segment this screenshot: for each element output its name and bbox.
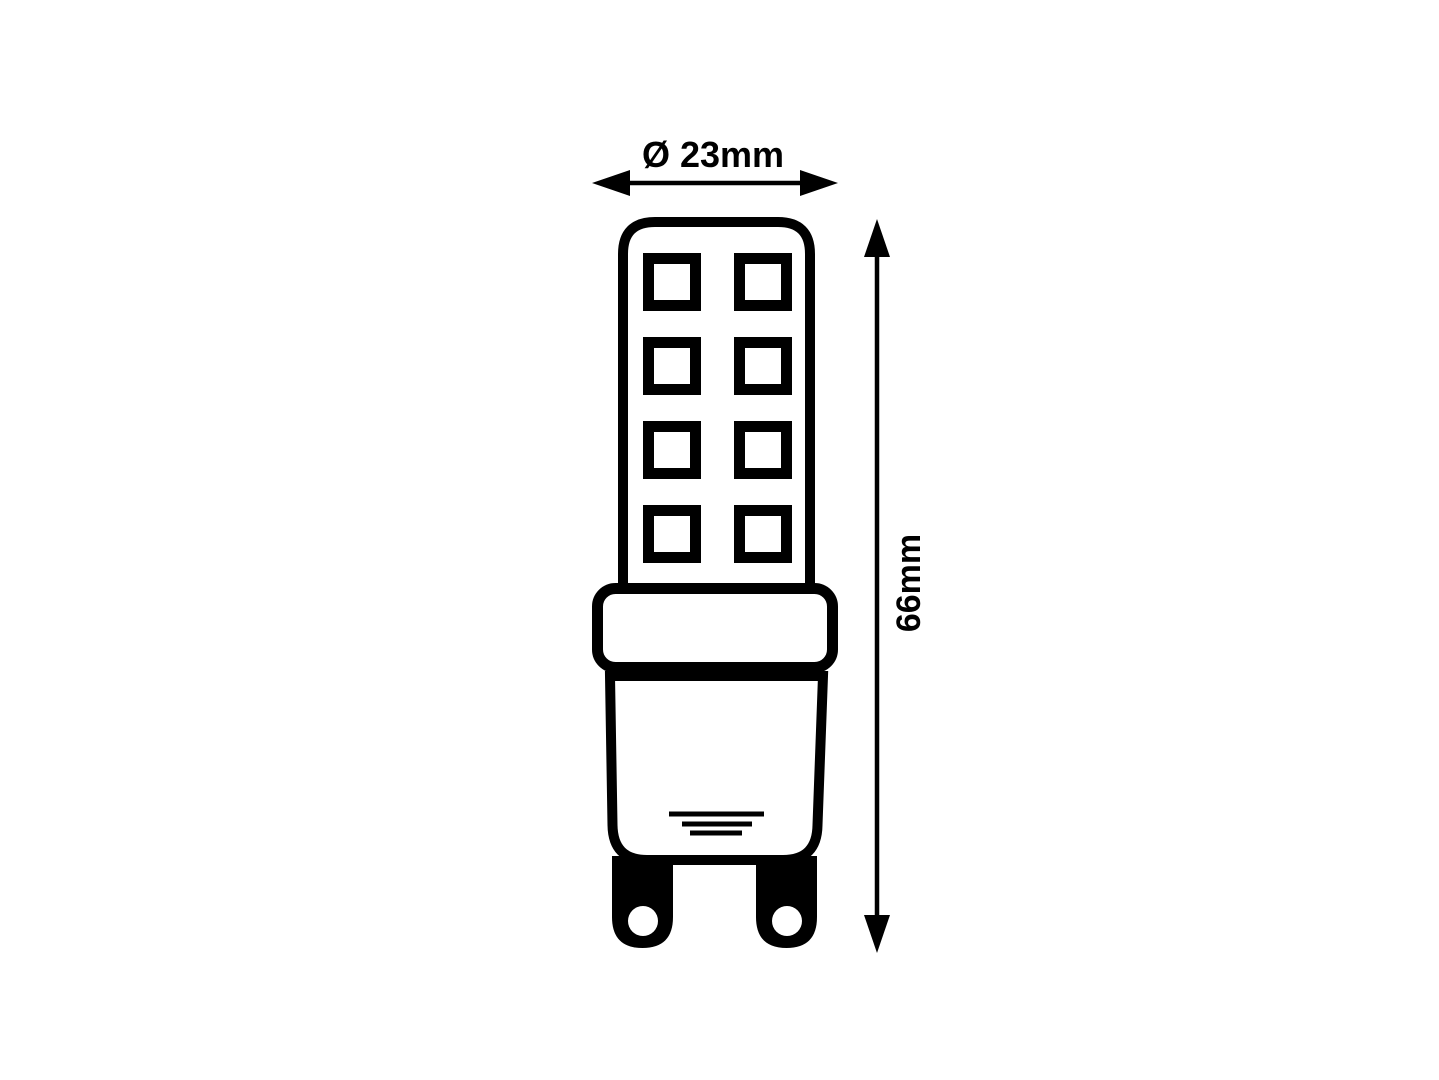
- g9-pins: [612, 856, 817, 948]
- pin-right-hole: [772, 906, 802, 936]
- diameter-label: Ø 23mm: [642, 134, 784, 175]
- height-dimension: 66mm: [864, 219, 928, 953]
- led-chip: [649, 259, 696, 306]
- height-label: 66mm: [890, 534, 928, 632]
- bulb-drawing: [598, 222, 833, 948]
- drawing-canvas: Ø 23mm 66mm: [0, 0, 1439, 1080]
- led-chip: [649, 427, 696, 474]
- bulb-collar: [598, 589, 833, 668]
- led-chip: [740, 343, 787, 390]
- diameter-arrowhead-right: [800, 170, 838, 196]
- height-arrowhead-bottom: [864, 915, 890, 953]
- led-chip: [649, 511, 696, 558]
- diameter-arrowhead-left: [592, 170, 630, 196]
- led-chip: [740, 511, 787, 558]
- height-arrowhead-top: [864, 219, 890, 257]
- bulb-dimension-drawing: Ø 23mm 66mm: [0, 0, 1439, 1080]
- led-chip: [740, 259, 787, 306]
- pin-left-hole: [628, 906, 658, 936]
- led-chip: [649, 343, 696, 390]
- led-chip: [740, 427, 787, 474]
- diameter-dimension: Ø 23mm: [592, 134, 838, 196]
